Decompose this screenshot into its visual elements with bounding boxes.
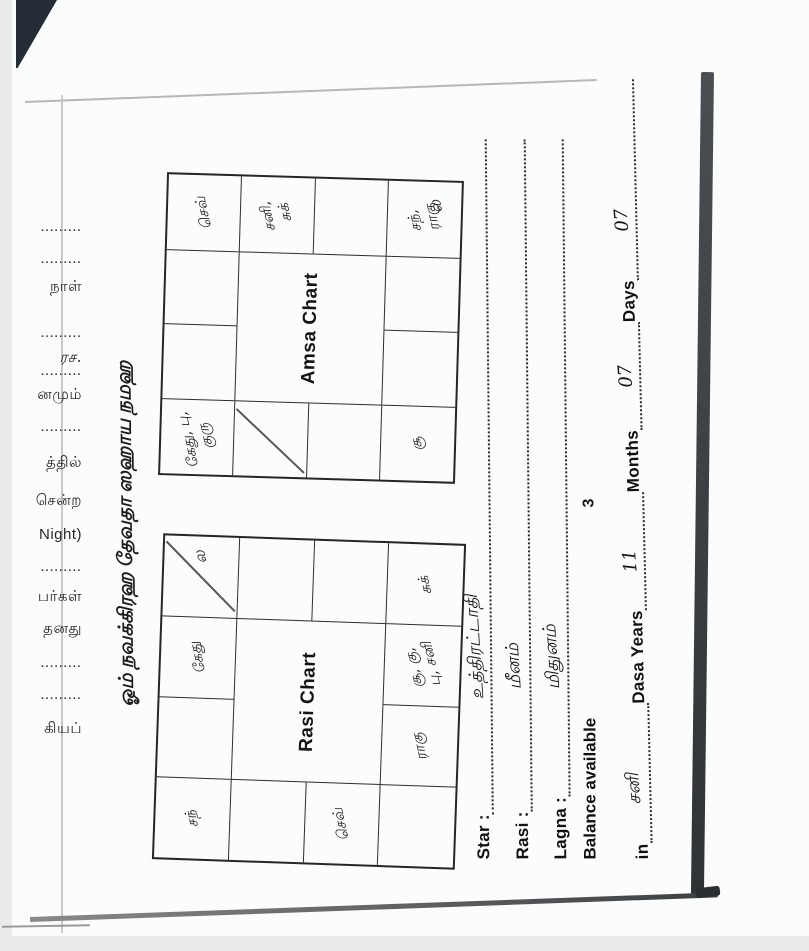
days-dotted-line <box>622 79 639 280</box>
page-title: ஓம் நவக்கிரஹ தேவதா ஸஹாய நமஹ <box>113 346 141 706</box>
rasi-cell-aries <box>157 696 235 779</box>
fragment-dots: ......... <box>41 422 82 434</box>
amsa-cell-r3c4 <box>313 179 388 256</box>
fragment-dots: ......... <box>41 254 82 266</box>
scan-gutter-bottom <box>0 936 809 951</box>
fragment-text: தனது <box>43 620 82 639</box>
scanned-horoscope-page: ......... ......... நாள் ......... ரச. .… <box>0 0 809 951</box>
rasi-cell-sagittarius <box>378 785 456 868</box>
fragment-text: கியப் <box>44 720 82 739</box>
amsa-r4c1-planets: சூ <box>407 435 428 452</box>
amsa-chart-center: Amsa Chart <box>236 251 387 405</box>
amsa-cell-r4c1: சூ <box>380 405 455 482</box>
fragment-text: னமும் <box>37 386 82 405</box>
amsa-cell-r1c4: செவ் <box>167 174 242 251</box>
rasi-cell-pisces: சந் <box>154 777 232 860</box>
rasi-dotted-line <box>514 139 533 811</box>
in-label: in <box>633 843 653 859</box>
fragment-text: சென்ற <box>36 492 82 511</box>
fragment-dots: ......... <box>41 690 82 702</box>
rasi-pisces-planets: சந் <box>182 808 203 829</box>
amsa-cell-r1c3 <box>165 249 240 326</box>
amsa-r1c1-planets: கேது, பு, குரு <box>174 406 222 469</box>
fragment-dots: ......... <box>41 658 82 670</box>
rasi-value-handwritten: மீனம் <box>502 642 528 690</box>
fragment-handwriting: ரச. <box>60 348 82 368</box>
fragment-dots: ......... <box>41 222 82 234</box>
amsa-cell-r1c1: கேது, பு, குரு <box>160 398 235 475</box>
rasi-capricorn-planets: செவ் <box>329 806 354 842</box>
lagna-diagonal-line <box>162 535 239 618</box>
rasi-libra-planets: சூ, கு, பு, சனி <box>400 640 445 692</box>
dasa-years-value-handwritten: 11 <box>619 549 642 573</box>
dasa-years-label: Dasa Years <box>627 610 649 704</box>
rasi-cell-leo <box>312 541 390 624</box>
amsa-cell-r4c2 <box>382 330 457 407</box>
rasi-cell-cancer <box>237 538 315 621</box>
rasi-label: Rasi : <box>513 811 534 859</box>
rasi-cell-gemini-lagna <box>162 535 240 618</box>
rasi-cell-aquarius <box>229 779 307 862</box>
page-number: 3 <box>581 499 599 508</box>
rotated-page-content: ஓம் நவக்கிரஹ தேவதா ஸஹாய நமஹ சந் கேது Ras… <box>95 75 740 935</box>
amsa-cell-r1c2 <box>162 324 237 401</box>
star-dotted-line <box>475 139 494 814</box>
form-row-dasa-balance: in Dasa Years Months Days சனி 11 07 07 <box>608 79 653 859</box>
form-row-rasi: Rasi : மீனம் <box>500 139 534 859</box>
amsa-r2c4-line2: சுக் <box>276 202 296 224</box>
rasi-scorpio-planets: ராகு <box>408 731 432 762</box>
amsa-r1c4-planets: செவ் <box>192 195 217 231</box>
rasi-cell-capricorn: செவ் <box>303 782 381 865</box>
amsa-r2c4-planets: சனி, சுக் <box>256 196 298 233</box>
rasi-cell-taurus: கேது <box>160 616 238 699</box>
balance-lord-handwritten: சனி <box>622 772 647 805</box>
months-value-handwritten: 07 <box>614 364 637 388</box>
amsa-cell-r4c4: சந், ராகு <box>386 181 461 258</box>
rasi-chart-title: Rasi Chart <box>296 652 321 753</box>
amsa-chart: கேது, பு, குரு செவ் Amsa Chart சனி, ச <box>158 172 464 484</box>
rasi-cell-scorpio: ராகு <box>381 704 459 787</box>
fragment-dots: ......... <box>41 366 82 378</box>
rasi-cell-virgo: சுக் <box>387 543 465 626</box>
fragment-text: நாள் <box>50 278 82 297</box>
fragment-dots: ......... <box>41 328 82 340</box>
amsa-chart-title: Amsa Chart <box>298 272 323 384</box>
form-row-lagna: Lagna : மிதுனம் <box>538 139 572 859</box>
months-label: Months <box>623 430 645 493</box>
fragment-dots: ......... <box>41 562 82 574</box>
amsa-cell-r2c1-lagna <box>233 401 308 478</box>
rasi-cell-libra: சூ, கு, பு, சனி <box>384 624 462 707</box>
lagna-label: Lagna : <box>551 797 572 860</box>
rasi-virgo-planets: சுக் <box>414 574 436 596</box>
lagna-diagonal-line <box>233 402 307 478</box>
balance-available-label: Balance available <box>581 718 601 860</box>
facing-page-fragments: ......... ......... நாள் ......... ரச. .… <box>8 0 82 951</box>
rasi-chart-center: Rasi Chart <box>231 618 386 784</box>
form-row-star: Star : உத்திரட்டாதி <box>461 139 495 859</box>
days-value-handwritten: 07 <box>611 208 634 232</box>
star-label: Star : <box>474 814 494 859</box>
rasi-taurus-planets: கேது <box>186 640 210 675</box>
lagna-dotted-line <box>552 139 571 797</box>
amsa-cell-r4c3 <box>384 255 459 332</box>
fragment-text: பர்கள் <box>38 588 82 607</box>
amsa-cell-r2c4: சனி, சுக் <box>240 176 315 253</box>
lagna-value-handwritten: மிதுனம் <box>539 624 566 691</box>
amsa-r4c4-line1: சந், <box>405 209 425 234</box>
amsa-cell-r3c1 <box>307 403 382 480</box>
rasi-chart: சந் கேது Rasi Chart செவ் ராகு <box>152 533 466 869</box>
amsa-r1c1-line2: குரு <box>196 421 217 450</box>
fragment-text: Night) <box>39 526 82 543</box>
fragment-text: த்தில் <box>46 454 82 473</box>
days-label: Days <box>619 280 640 322</box>
